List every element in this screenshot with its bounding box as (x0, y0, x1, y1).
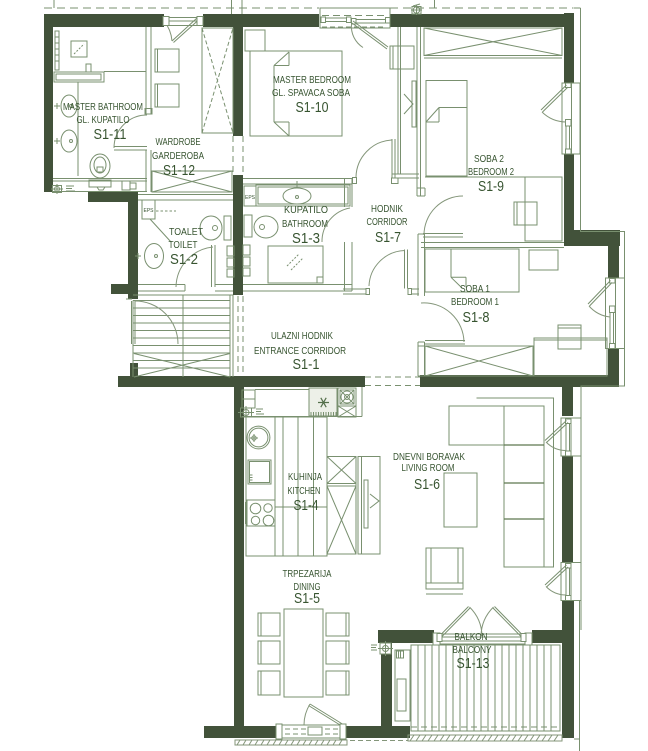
svg-text:HODNIK: HODNIK (371, 204, 403, 215)
svg-text:KUPATILO: KUPATILO (284, 205, 328, 216)
svg-text:MASTER BATHROOM: MASTER BATHROOM (63, 102, 143, 113)
svg-text:EPS: EPS (245, 195, 256, 201)
svg-text:S1-13: S1-13 (457, 656, 490, 672)
svg-text:BALCONY: BALCONY (453, 645, 492, 656)
svg-text:S1-8: S1-8 (463, 310, 490, 326)
svg-text:S1-7: S1-7 (375, 230, 401, 246)
svg-text:S1-5: S1-5 (294, 591, 320, 607)
svg-text:BALKON: BALKON (455, 632, 488, 643)
svg-text:S1-12: S1-12 (163, 163, 195, 179)
svg-text:S1-9: S1-9 (478, 179, 504, 195)
svg-text:KUHINJA: KUHINJA (288, 472, 322, 483)
svg-text:BEDROOM 1: BEDROOM 1 (451, 297, 499, 308)
svg-text:EPS: EPS (143, 208, 154, 214)
svg-text:S1-11: S1-11 (94, 127, 127, 143)
svg-text:DNEVNI BORAVAK: DNEVNI BORAVAK (393, 452, 465, 463)
svg-text:ULAZNI HODNIK: ULAZNI HODNIK (271, 331, 333, 342)
svg-text:BATHROOM: BATHROOM (282, 219, 328, 230)
svg-text:S1-1: S1-1 (293, 357, 320, 373)
svg-text:WARDROBE: WARDROBE (156, 137, 201, 148)
svg-text:S1-6: S1-6 (414, 477, 440, 493)
svg-text:LIVING ROOM: LIVING ROOM (402, 463, 455, 474)
svg-text:SOBA 2: SOBA 2 (474, 154, 504, 165)
svg-text:GL. KUPATILO: GL. KUPATILO (77, 115, 130, 126)
svg-text:GARDEROBA: GARDEROBA (152, 151, 204, 162)
svg-text:CORRIDOR: CORRIDOR (367, 217, 408, 228)
svg-text:KITCHEN: KITCHEN (288, 486, 321, 497)
svg-text:S1-2: S1-2 (170, 252, 198, 268)
svg-text:ENTRANCE CORRIDOR: ENTRANCE CORRIDOR (254, 346, 346, 357)
svg-text:S1-3: S1-3 (292, 231, 320, 247)
svg-text:BEDROOM 2: BEDROOM 2 (468, 167, 514, 178)
svg-text:TOILET: TOILET (169, 240, 198, 251)
svg-text:TRPEZARIJA: TRPEZARIJA (283, 569, 332, 580)
svg-text:MASTER BEDROOM: MASTER BEDROOM (273, 75, 351, 86)
svg-text:TOALET: TOALET (169, 227, 203, 238)
svg-text:S1-4: S1-4 (294, 498, 319, 514)
svg-text:GL. SPAVACA SOBA: GL. SPAVACA SOBA (272, 88, 350, 99)
svg-text:S1-10: S1-10 (296, 100, 329, 116)
svg-text:SOBA 1: SOBA 1 (460, 284, 490, 295)
